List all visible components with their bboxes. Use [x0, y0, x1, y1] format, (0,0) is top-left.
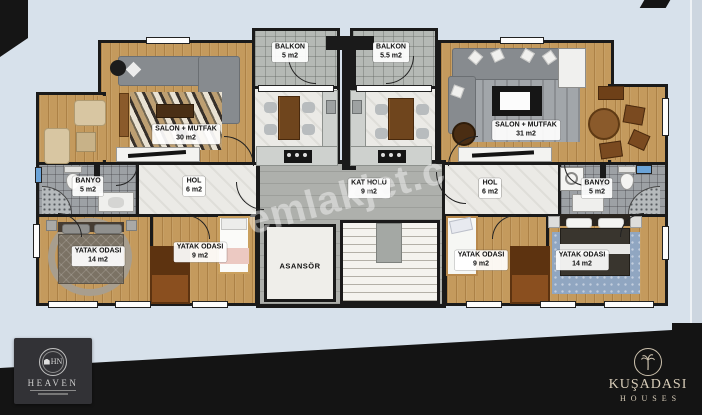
bed-pillow: [566, 218, 592, 228]
room-name: HOL: [186, 177, 202, 186]
heaven-name: HEAVEN: [28, 378, 79, 388]
room-area: 6 m2: [186, 186, 202, 195]
kusadasi-title: KUŞADASI: [609, 377, 688, 393]
corner-decoration: [0, 0, 30, 57]
kitchen-counter: [322, 90, 338, 148]
balcony-door-sill: [356, 85, 432, 92]
chair: [416, 104, 429, 115]
side-table: [76, 132, 96, 152]
room-name: BANYO: [75, 177, 100, 186]
chair: [375, 128, 388, 139]
nightstand: [46, 220, 57, 231]
room-name: ASANSÖR: [279, 261, 320, 270]
room-name: SALON + MUTFAK: [155, 125, 217, 134]
room-label-salon-left: SALON + MUTFAK 30 m2: [152, 124, 220, 144]
room-name: BANYO: [584, 179, 609, 188]
room-area: 30 m2: [155, 134, 217, 143]
room-label-asansor: ASANSÖR: [276, 260, 323, 271]
nightstand: [126, 220, 137, 231]
tv-screen: [500, 92, 530, 110]
divider: [30, 390, 76, 391]
room-label-yatak-right-small: YATAK ODASI 9 m2: [455, 250, 508, 270]
burner: [303, 153, 307, 157]
heaven-tagline-bar: [38, 393, 68, 395]
refrigerator: [558, 48, 586, 88]
kitchen-sink: [352, 100, 362, 114]
room-label-hol-left: HOL 6 m2: [183, 176, 205, 196]
room-name: KAT HOLÜ: [351, 179, 387, 188]
toilet-tank: [64, 166, 82, 173]
bed-pillow: [598, 218, 624, 228]
wardrobe: [510, 246, 550, 304]
sink-basin: [108, 197, 124, 208]
cabinet: [598, 86, 624, 100]
corner-decoration: [640, 0, 671, 8]
window: [48, 301, 98, 308]
room-label-balkon-left: BALKON 5 m2: [272, 42, 308, 62]
window: [115, 301, 151, 308]
heaven-emblem: HN: [39, 348, 67, 376]
room-area: 14 m2: [559, 260, 606, 269]
balcony-door-sill: [258, 85, 334, 92]
room-label-yatak-left-small: YATAK ODASI 9 m2: [174, 242, 227, 262]
chair: [264, 102, 277, 113]
room-name: BALKON: [275, 43, 305, 52]
coffee-table: [156, 104, 194, 118]
chair: [302, 102, 315, 113]
window: [604, 301, 654, 308]
room-area: 31 m2: [495, 130, 557, 139]
room-label-yatak-right-big: YATAK ODASI 14 m2: [556, 250, 609, 270]
chair: [416, 128, 429, 139]
window: [192, 301, 228, 308]
stair-landing: [376, 223, 402, 263]
room-label-banyo-left: BANYO 5 m2: [72, 176, 103, 196]
room-name: SALON + MUTFAK: [495, 121, 557, 130]
kusadasi-houses-logo: KUŞADASI HOUSES: [594, 348, 702, 410]
burner: [389, 153, 393, 157]
chair: [375, 104, 388, 115]
nightstand: [548, 216, 560, 228]
window: [662, 226, 669, 260]
kitchen-sink: [326, 100, 336, 114]
window: [466, 301, 502, 308]
armchair: [44, 128, 70, 164]
room-area: 14 m2: [75, 256, 122, 265]
armchair: [74, 100, 106, 126]
room-label-kat-holu: KAT HOLÜ 9 m2: [348, 178, 390, 198]
bed-pillow: [221, 218, 247, 230]
burner: [381, 153, 385, 157]
chair: [623, 104, 646, 125]
room-name: BALKON: [376, 43, 406, 52]
heaven-logo: HN HEAVEN: [14, 338, 92, 404]
sideboard: [119, 93, 129, 137]
room-label-salon-right: SALON + MUTFAK 31 m2: [492, 120, 560, 140]
room-name: YATAK ODASI: [458, 251, 505, 260]
side-table: [110, 60, 126, 76]
room-area: 9 m2: [458, 260, 505, 269]
heaven-initials: HN: [51, 357, 63, 366]
room-name: YATAK ODASI: [559, 251, 606, 260]
page-edge-band: [690, 0, 702, 332]
bathroom-window: [35, 167, 42, 183]
room-label-hol-right: HOL 6 m2: [479, 178, 501, 198]
room-name: HOL: [482, 179, 498, 188]
kusadasi-subtitle: HOUSES: [620, 394, 681, 403]
chair: [599, 141, 623, 160]
room-area: 9 m2: [177, 252, 224, 261]
room-name: YATAK ODASI: [75, 247, 122, 256]
dining-table: [388, 98, 414, 140]
window: [500, 37, 544, 44]
dining-table: [278, 96, 300, 140]
kitchen-counter: [350, 90, 366, 148]
palm-tree-icon: [634, 348, 662, 376]
room-label-yatak-left-big: YATAK ODASI 14 m2: [72, 246, 125, 266]
room-area: 5 m2: [75, 186, 100, 195]
toilet-tank: [618, 166, 636, 173]
dining-table-round: [588, 108, 620, 140]
burner: [397, 153, 401, 157]
burner: [295, 153, 299, 157]
room-name: YATAK ODASI: [177, 243, 224, 252]
window: [662, 98, 669, 136]
chair: [264, 124, 277, 135]
room-area: 6 m2: [482, 188, 498, 197]
floor-plan-image: BALKON 5 m2 BALKON 5.5 m2 SALON + MUTFAK…: [0, 0, 702, 415]
room-label-banyo-right: BANYO 5 m2: [581, 178, 612, 198]
window: [540, 301, 576, 308]
window: [146, 37, 190, 44]
room-area: 5.5 m2: [376, 52, 406, 61]
chair: [302, 124, 315, 135]
burner: [287, 153, 291, 157]
room-area: 9 m2: [351, 188, 387, 197]
room-label-balkon-right: BALKON 5.5 m2: [373, 42, 409, 62]
house-icon: [44, 359, 50, 365]
palm-tree-svg: [640, 353, 656, 371]
bed-pillow: [94, 224, 122, 234]
bathroom-window: [636, 165, 652, 174]
window: [33, 224, 40, 258]
room-area: 5 m2: [275, 52, 305, 61]
room-area: 5 m2: [584, 188, 609, 197]
